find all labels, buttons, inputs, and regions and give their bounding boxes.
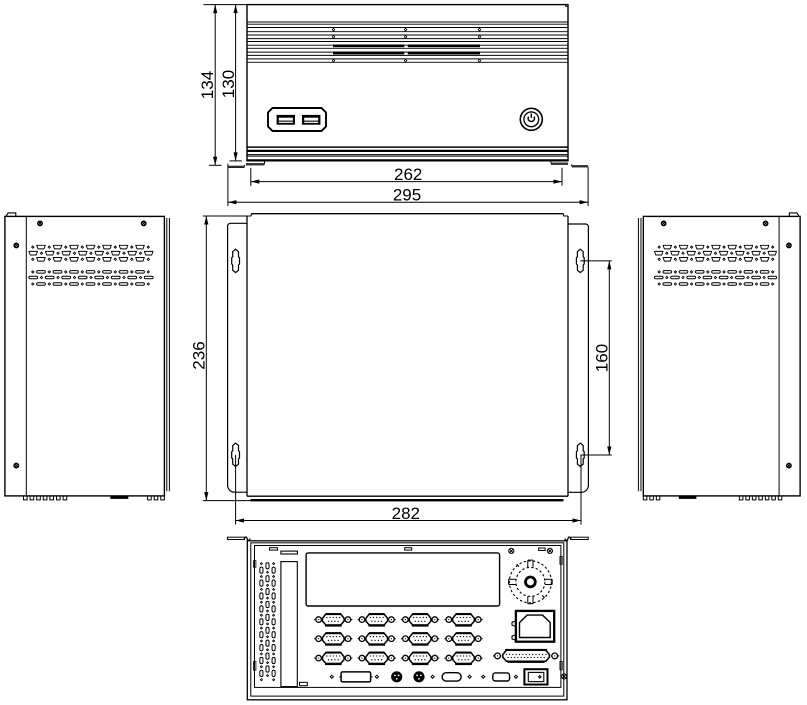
svg-text:236: 236 [190,341,209,369]
svg-text:160: 160 [593,344,612,372]
svg-text:282: 282 [392,504,420,523]
svg-text:295: 295 [393,186,421,205]
svg-text:130: 130 [219,70,238,98]
svg-text:262: 262 [394,165,422,184]
svg-text:134: 134 [198,71,217,99]
